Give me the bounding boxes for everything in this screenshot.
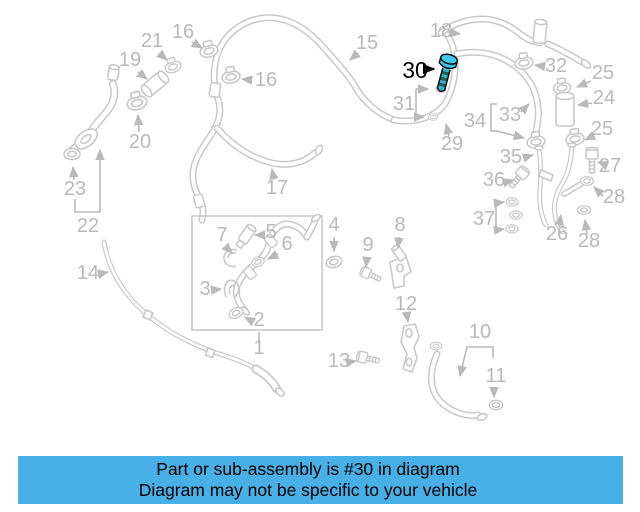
part-27-bolt xyxy=(586,148,598,174)
leader-arrow xyxy=(398,237,399,248)
part-label-10: 10 xyxy=(469,321,491,343)
part-label-28a: 28 xyxy=(603,186,625,208)
callout-8: 8 xyxy=(394,214,405,248)
part-label-20: 20 xyxy=(129,131,151,153)
callout-16a: 16 xyxy=(172,21,202,48)
part-32-clamp xyxy=(513,52,534,71)
callout-27: 27 xyxy=(598,155,621,177)
callout-35: 35 xyxy=(500,146,533,168)
part-28b-ring xyxy=(578,206,591,215)
part-label-37: 37 xyxy=(473,208,495,230)
part-label-22: 22 xyxy=(77,215,99,237)
callout-4: 4 xyxy=(328,214,339,251)
callout-16b: 16 xyxy=(242,69,277,91)
callout-31: 31 xyxy=(393,89,428,117)
leader-arrow xyxy=(268,254,278,259)
callout-28b: 28 xyxy=(578,220,600,252)
part-label-15: 15 xyxy=(356,32,378,54)
part-12-bracket xyxy=(401,324,419,372)
leader-arrow xyxy=(496,229,504,230)
part-label-2: 2 xyxy=(253,309,264,331)
part-label-19: 19 xyxy=(119,49,141,71)
part-36-washer xyxy=(510,211,522,219)
leader-arrow xyxy=(245,317,250,320)
callout-28a: 28 xyxy=(594,186,625,208)
part-label-25b: 25 xyxy=(591,118,613,140)
leader-arrow xyxy=(496,202,504,203)
part-label-17: 17 xyxy=(266,177,288,199)
part-label-7: 7 xyxy=(216,224,227,246)
callout-19: 19 xyxy=(119,49,147,79)
leader-arrow xyxy=(350,361,356,362)
caption-line-1: Part or sub-assembly is #30 in diagram xyxy=(156,459,459,479)
part-11-oring xyxy=(489,400,503,409)
part-label-33: 33 xyxy=(499,104,521,126)
part-37-ring-bottom xyxy=(506,225,518,233)
part-label-13: 13 xyxy=(328,350,350,372)
leader-arrow xyxy=(99,272,108,274)
caption-bar: Part or sub-assembly is #30 in diagram D… xyxy=(18,456,623,504)
leader-arrow xyxy=(460,347,467,376)
part-19-cylinder xyxy=(139,69,170,98)
part-label-16a: 16 xyxy=(172,21,194,43)
part-8-bracket-stud xyxy=(390,244,411,288)
parts-diagram-svg: 16 21 19 20 16 15 18 31 29 32 25 24 25 3… xyxy=(0,0,640,512)
leader-arrow xyxy=(213,289,221,290)
part-label-12: 12 xyxy=(395,293,417,315)
leader-arrow xyxy=(521,104,529,112)
part-5-sensor xyxy=(234,223,257,249)
callout-20: 20 xyxy=(129,115,151,153)
part-label-23: 23 xyxy=(64,178,86,200)
leader-arrow xyxy=(192,42,202,48)
part-36-bolt xyxy=(506,165,530,191)
callout-29: 29 xyxy=(441,124,463,155)
part-label-26: 26 xyxy=(546,223,568,245)
hose-17 xyxy=(217,128,324,164)
part-label-11: 11 xyxy=(486,365,507,387)
filler-neck-assembly xyxy=(66,64,119,156)
pipe-35 xyxy=(535,146,553,225)
part-label-25a: 25 xyxy=(592,62,614,84)
callout-33: 33 xyxy=(499,104,529,126)
part-4-grommet xyxy=(325,255,343,270)
part-label-5: 5 xyxy=(265,221,276,243)
callout-1: 1 xyxy=(253,332,264,359)
leader-arrow xyxy=(452,33,460,34)
leader-arrow xyxy=(159,53,167,60)
callout-32: 32 xyxy=(535,55,567,77)
bracket-line xyxy=(491,104,497,131)
callout-25b: 25 xyxy=(585,118,613,140)
part-37-ring-top xyxy=(506,198,518,206)
caption-line-2: Diagram may not be specific to your vehi… xyxy=(139,480,477,500)
part-label-3: 3 xyxy=(199,278,210,300)
leader-arrow xyxy=(578,103,592,105)
diagram-canvas: 16 21 19 20 16 15 18 31 29 32 25 24 25 3… xyxy=(0,0,640,512)
bracket-line xyxy=(75,199,100,212)
part-label-18: 18 xyxy=(430,20,452,42)
part-label-31: 31 xyxy=(393,93,415,115)
hose-10 xyxy=(430,342,487,421)
part-label-29: 29 xyxy=(441,133,463,155)
leader-arrow xyxy=(535,65,542,66)
callout-24: 24 xyxy=(578,87,615,109)
leader-arrow xyxy=(594,187,603,196)
leader-arrow xyxy=(523,155,533,158)
part-label-9: 9 xyxy=(362,234,373,256)
part-label-6: 6 xyxy=(281,233,292,255)
part-label-24: 24 xyxy=(593,87,615,109)
highlight-part-label[interactable]: 30 xyxy=(402,57,428,83)
part-label-4: 4 xyxy=(328,214,339,236)
part-9-bolt xyxy=(359,266,383,285)
callout-23: 23 xyxy=(64,167,86,200)
pipe-26 xyxy=(554,143,581,232)
part-label-32: 32 xyxy=(545,55,567,77)
leader-arrow xyxy=(242,79,251,80)
part-23-oring xyxy=(64,149,80,160)
leader-arrow xyxy=(366,257,367,267)
part-24-cylinder xyxy=(556,93,574,127)
part-label-16b: 16 xyxy=(255,69,277,91)
hose-coupler xyxy=(193,194,205,209)
leader-arrow xyxy=(407,315,408,322)
part-label-27: 27 xyxy=(599,155,621,177)
callout-3: 3 xyxy=(199,278,221,300)
leader-arrow xyxy=(350,53,358,60)
leader-arrow xyxy=(577,81,591,87)
part-label-8: 8 xyxy=(394,214,405,236)
callout-13: 13 xyxy=(328,350,356,372)
part-16b-clamp xyxy=(220,66,241,85)
part-label-35: 35 xyxy=(500,146,522,168)
part-label-34: 34 xyxy=(464,110,486,132)
leader-arrow xyxy=(138,72,147,79)
part-31-ring-bottom xyxy=(428,114,438,121)
callout-11: 11 xyxy=(486,365,507,397)
callout-5: 5 xyxy=(255,221,277,243)
callout-9: 9 xyxy=(362,234,373,267)
callout-7: 7 xyxy=(216,224,232,253)
bracket-line xyxy=(467,347,493,358)
leader-arrow xyxy=(73,167,74,180)
callout-15: 15 xyxy=(350,32,378,60)
part-label-28b: 28 xyxy=(578,230,600,252)
callout-21: 21 xyxy=(141,30,167,60)
callout-17: 17 xyxy=(266,169,288,199)
callout-36: 36 xyxy=(483,169,513,191)
part-label-14: 14 xyxy=(77,262,99,284)
leader-arrow xyxy=(138,115,139,132)
callout-12: 12 xyxy=(395,293,417,322)
part-13-bolt xyxy=(356,351,381,366)
callout-37: 37 xyxy=(473,202,504,230)
part-label-36: 36 xyxy=(483,169,505,191)
part-28a-ring xyxy=(581,177,594,186)
leader-arrow xyxy=(497,131,524,138)
part-label-21: 21 xyxy=(141,30,163,52)
callout-14: 14 xyxy=(77,262,108,284)
hose-junction-coupler xyxy=(209,82,221,98)
